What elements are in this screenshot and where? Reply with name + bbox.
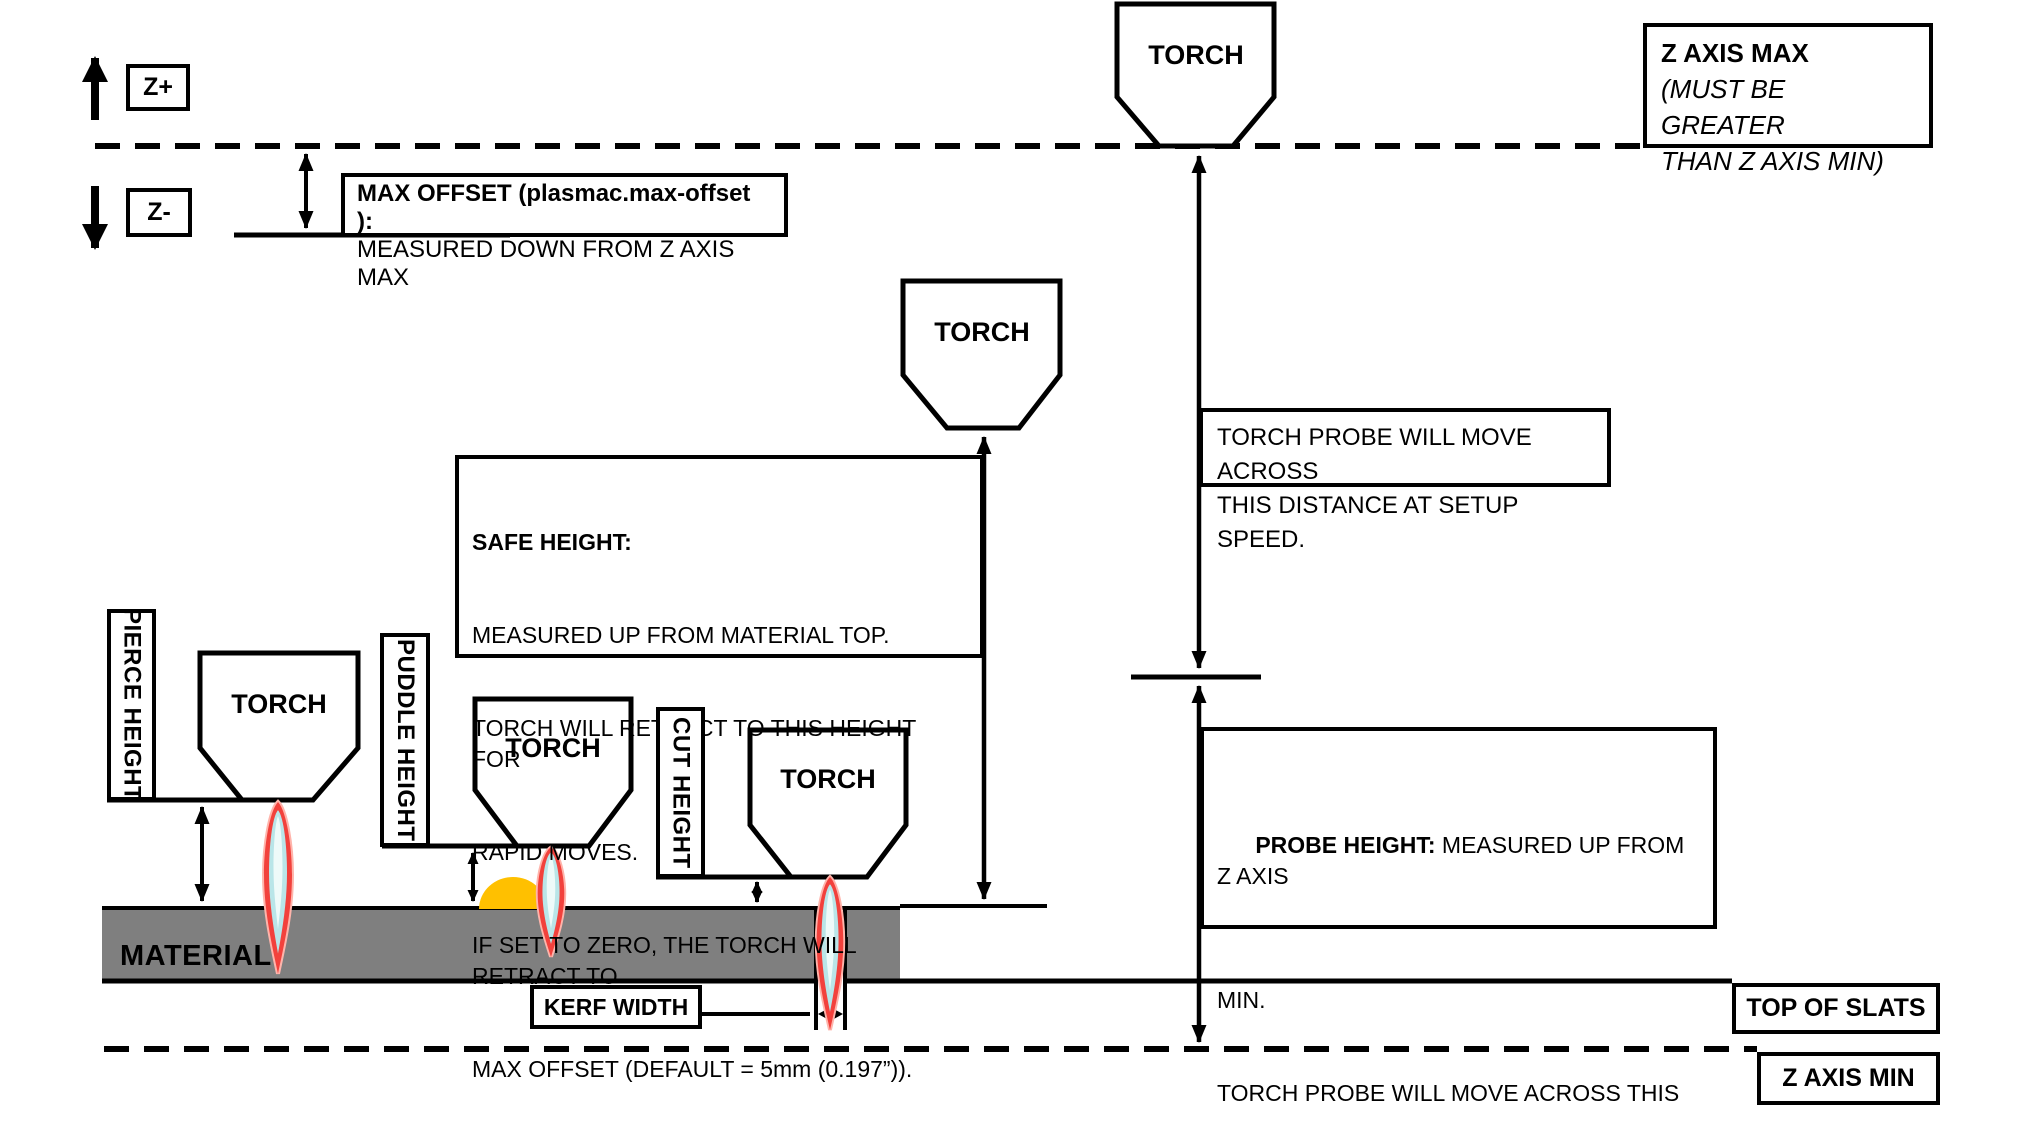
setup-speed-note: TORCH PROBE WILL MOVE ACROSS THIS DISTAN… (1199, 408, 1611, 487)
cut-height-text: CUT HEIGHT (667, 717, 695, 869)
z-axis-max-note: Z AXIS MAX (MUST BE GREATER THAN Z AXIS … (1643, 23, 1933, 148)
z-plus-label: Z+ (126, 64, 190, 111)
safe-height-title: SAFE HEIGHT: (472, 527, 967, 558)
z-axis-max-title: Z AXIS MAX (1661, 35, 1915, 71)
z-minus-text: Z- (147, 198, 171, 227)
z-plus-text: Z+ (143, 73, 173, 102)
safe-height-line3: RAPID MOVES. (472, 837, 967, 868)
top-of-slats-label: TOP OF SLATS (1732, 983, 1940, 1034)
pierce-height-label: PIERCE HEIGHT (107, 609, 156, 801)
kerf-width-text: KERF WIDTH (544, 994, 688, 1021)
kerf-width-label: KERF WIDTH (530, 985, 702, 1029)
safe-height-line5: MAX OFFSET (DEFAULT = 5mm (0.197”)). (472, 1054, 967, 1085)
torch-at-safe-height: TORCH (903, 281, 1060, 428)
cut-height-label: CUT HEIGHT (656, 707, 705, 878)
puddle-height-label: PUDDLE HEIGHT (380, 633, 430, 847)
torch-label: TORCH (1148, 40, 1244, 70)
max-offset-title: MAX OFFSET (plasmac.max-offset ): (357, 180, 772, 236)
pierce-height-text: PIERCE HEIGHT (118, 608, 146, 801)
safe-height-note: SAFE HEIGHT: MEASURED UP FROM MATERIAL T… (455, 455, 984, 658)
max-offset-note: MAX OFFSET (plasmac.max-offset ): MEASUR… (341, 173, 788, 237)
max-offset-line2: MEASURED DOWN FROM Z AXIS MAX (357, 236, 772, 292)
plasmac-height-diagram: MATERIAL (0, 0, 2038, 1145)
torch-label: TORCH (934, 317, 1030, 347)
probe-height-note: PROBE HEIGHT: MEASURED UP FROM Z AXIS MI… (1200, 727, 1717, 929)
safe-height-line4: IF SET TO ZERO, THE TORCH WILL RETRACT T… (472, 930, 967, 992)
z-axis-max-note-line1: (MUST BE GREATER (1661, 71, 1915, 143)
probe-height-line2: MIN. (1217, 985, 1700, 1016)
safe-height-line2: TORCH WILL RETRACT TO THIS HEIGHT FOR (472, 713, 967, 775)
z-axis-max-note-line2: THAN Z AXIS MIN) (1661, 143, 1915, 179)
probe-height-line3: TORCH PROBE WILL MOVE ACROSS THIS (1217, 1078, 1700, 1109)
setup-note-line2: THIS DISTANCE AT SETUP SPEED. (1217, 489, 1593, 557)
z-minus-label: Z- (126, 188, 192, 237)
setup-note-line1: TORCH PROBE WILL MOVE ACROSS (1217, 421, 1593, 489)
z-axis-min-text: Z AXIS MIN (1782, 1064, 1914, 1093)
torch-label: TORCH (231, 689, 327, 719)
pierce-flame-icon (264, 802, 292, 974)
torch-at-z-max: TORCH (1117, 4, 1274, 146)
puddle-height-text: PUDDLE HEIGHT (391, 639, 419, 842)
torch-at-pierce-height: TORCH (200, 653, 358, 800)
probe-height-title: PROBE HEIGHT: (1255, 832, 1435, 858)
top-of-slats-text: TOP OF SLATS (1746, 994, 1925, 1023)
safe-height-line1: MEASURED UP FROM MATERIAL TOP. (472, 620, 967, 651)
z-axis-min-label: Z AXIS MIN (1757, 1052, 1940, 1105)
